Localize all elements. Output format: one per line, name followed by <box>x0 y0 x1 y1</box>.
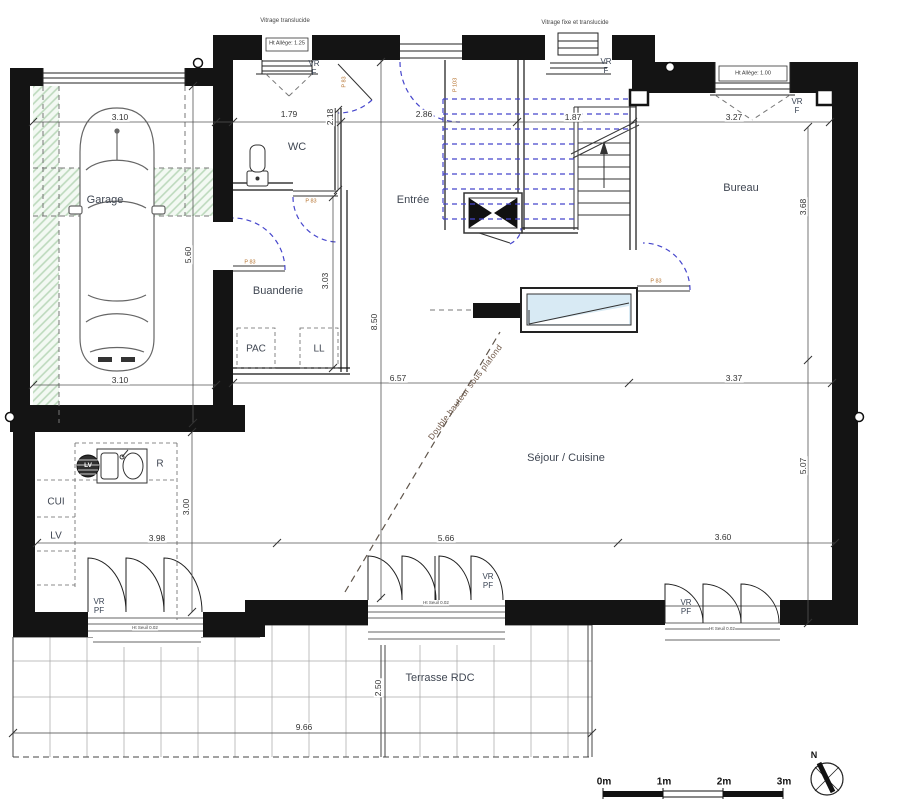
door-ref-p83-buanderie-2: P 83 <box>244 260 255 266</box>
label-vr-f-1: VR F <box>306 59 322 77</box>
dim-wc-width: 1.79 <box>280 110 299 119</box>
note-seuil-3: Ht Seuil 0.02 <box>709 627 735 632</box>
note-seuil-1: Ht Seuil 0.02 <box>132 626 158 631</box>
room-label-sejour: Séjour / Cuisine <box>527 452 605 464</box>
dim-bureau-depth: 3.68 <box>799 198 808 217</box>
label-vr-pf-2: VR PF <box>479 572 497 590</box>
room-label-lv: LV <box>50 531 62 542</box>
dim-bureau-bottom-width: 3.37 <box>725 374 744 383</box>
dim-buanderie-depth: 3.03 <box>321 272 330 291</box>
scale-label-1m: 1m <box>657 777 671 788</box>
dim-entree-depth: 8.50 <box>370 313 379 332</box>
scale-label-3m: 3m <box>777 777 791 788</box>
dim-stair-width: 1.87 <box>564 113 583 122</box>
staircase <box>571 107 639 230</box>
label-vr-f-2: VR F <box>598 57 614 75</box>
room-label-garage: Garage <box>87 194 124 206</box>
toilet <box>247 145 268 186</box>
room-label-terrasse: Terrasse RDC <box>405 672 474 684</box>
dim-bureau-width: 3.27 <box>725 113 744 122</box>
dim-kitchen-depth: 3.00 <box>182 498 191 517</box>
stair-closet <box>464 193 522 233</box>
dim-sejour-right-width: 3.60 <box>714 533 733 542</box>
dim-garage-width: 3.10 <box>111 113 130 122</box>
scale-bar <box>603 788 783 799</box>
dim-sejour-width: 5.66 <box>437 534 456 543</box>
door-ref-p83-buanderie-1: P 83 <box>305 199 316 205</box>
door-ref-p103-entree: P 103 <box>453 78 459 92</box>
room-label-wc: WC <box>288 141 306 153</box>
north-compass-icon <box>811 763 843 795</box>
dim-terrasse-depth: 2.50 <box>374 679 383 698</box>
note-vitrage-translucide: Vitrage translucide <box>260 18 310 24</box>
car <box>69 108 165 371</box>
dim-garage-width-2: 3.10 <box>111 376 130 385</box>
north-label: N <box>811 750 818 760</box>
dim-sejour-top-width: 6.57 <box>389 374 408 383</box>
dim-terrasse-width: 9.66 <box>295 723 314 732</box>
door-leaves <box>233 64 690 291</box>
room-label-bureau: Bureau <box>723 182 758 194</box>
dim-wc-depth: 2.18 <box>326 108 335 127</box>
door-swing-arcs <box>233 62 690 290</box>
room-label-buanderie: Buanderie <box>253 285 303 297</box>
appliance-label-fridge: R <box>156 459 163 470</box>
post <box>817 90 833 105</box>
glass-partition <box>521 288 637 332</box>
note-seuil-2: Ht Seuil 0.02 <box>423 601 449 606</box>
post <box>630 90 648 105</box>
door-ref-p83-wc: P 83 <box>342 76 348 87</box>
note-allege-100: Ht Allège: 1.00 <box>735 71 771 77</box>
label-vr-pf-1: VR PF <box>90 597 108 615</box>
dim-garage-depth: 5.60 <box>184 246 193 265</box>
floor-plan-page: Garage WC Entrée Bureau Buanderie PAC LL… <box>0 0 914 800</box>
room-label-pac: PAC <box>246 344 266 355</box>
appliance-label-lv: LV <box>84 463 92 470</box>
room-label-entree: Entrée <box>397 194 429 206</box>
scale-label-0m: 0m <box>597 777 611 788</box>
dim-kitchen-width: 3.98 <box>148 534 167 543</box>
dim-sejour-depth: 5.07 <box>799 457 808 476</box>
room-label-cui: CUI <box>47 497 64 508</box>
note-allege-125: Ht Allège: 1.25 <box>269 41 305 47</box>
label-vr-pf-3: VR PF <box>677 598 695 616</box>
scale-label-2m: 2m <box>717 777 731 788</box>
note-vitrage-fixe: Vitrage fixe et translucide <box>541 20 608 26</box>
kitchen-sink <box>97 449 147 483</box>
room-label-ll: LL <box>313 344 324 355</box>
dim-entree-width: 2.86 <box>415 110 434 119</box>
label-vr-f-3: VR F <box>789 97 805 115</box>
door-ref-p83-sejour: P 83 <box>650 279 661 285</box>
